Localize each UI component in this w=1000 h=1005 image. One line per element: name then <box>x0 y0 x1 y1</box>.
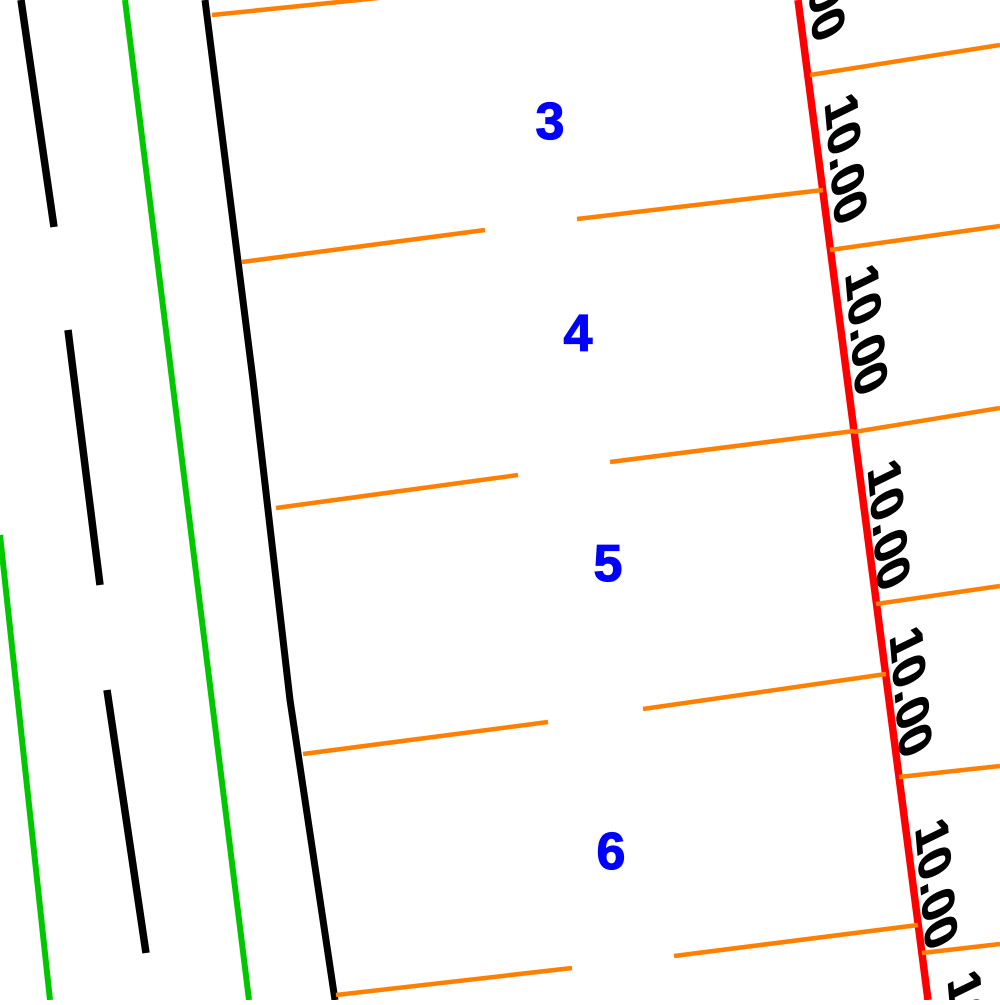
svg-text:6: 6 <box>597 823 626 881</box>
svg-text:3: 3 <box>536 93 565 151</box>
svg-text:10.00: 10.00 <box>906 809 967 958</box>
svg-text:10.00: 10.00 <box>880 617 941 766</box>
svg-text:4: 4 <box>564 305 593 363</box>
svg-text:5: 5 <box>594 535 623 593</box>
svg-text:10.00: 10.00 <box>836 255 897 404</box>
svg-text:10.00: 10.00 <box>858 450 919 599</box>
svg-text:10.00: 10.00 <box>815 84 876 233</box>
